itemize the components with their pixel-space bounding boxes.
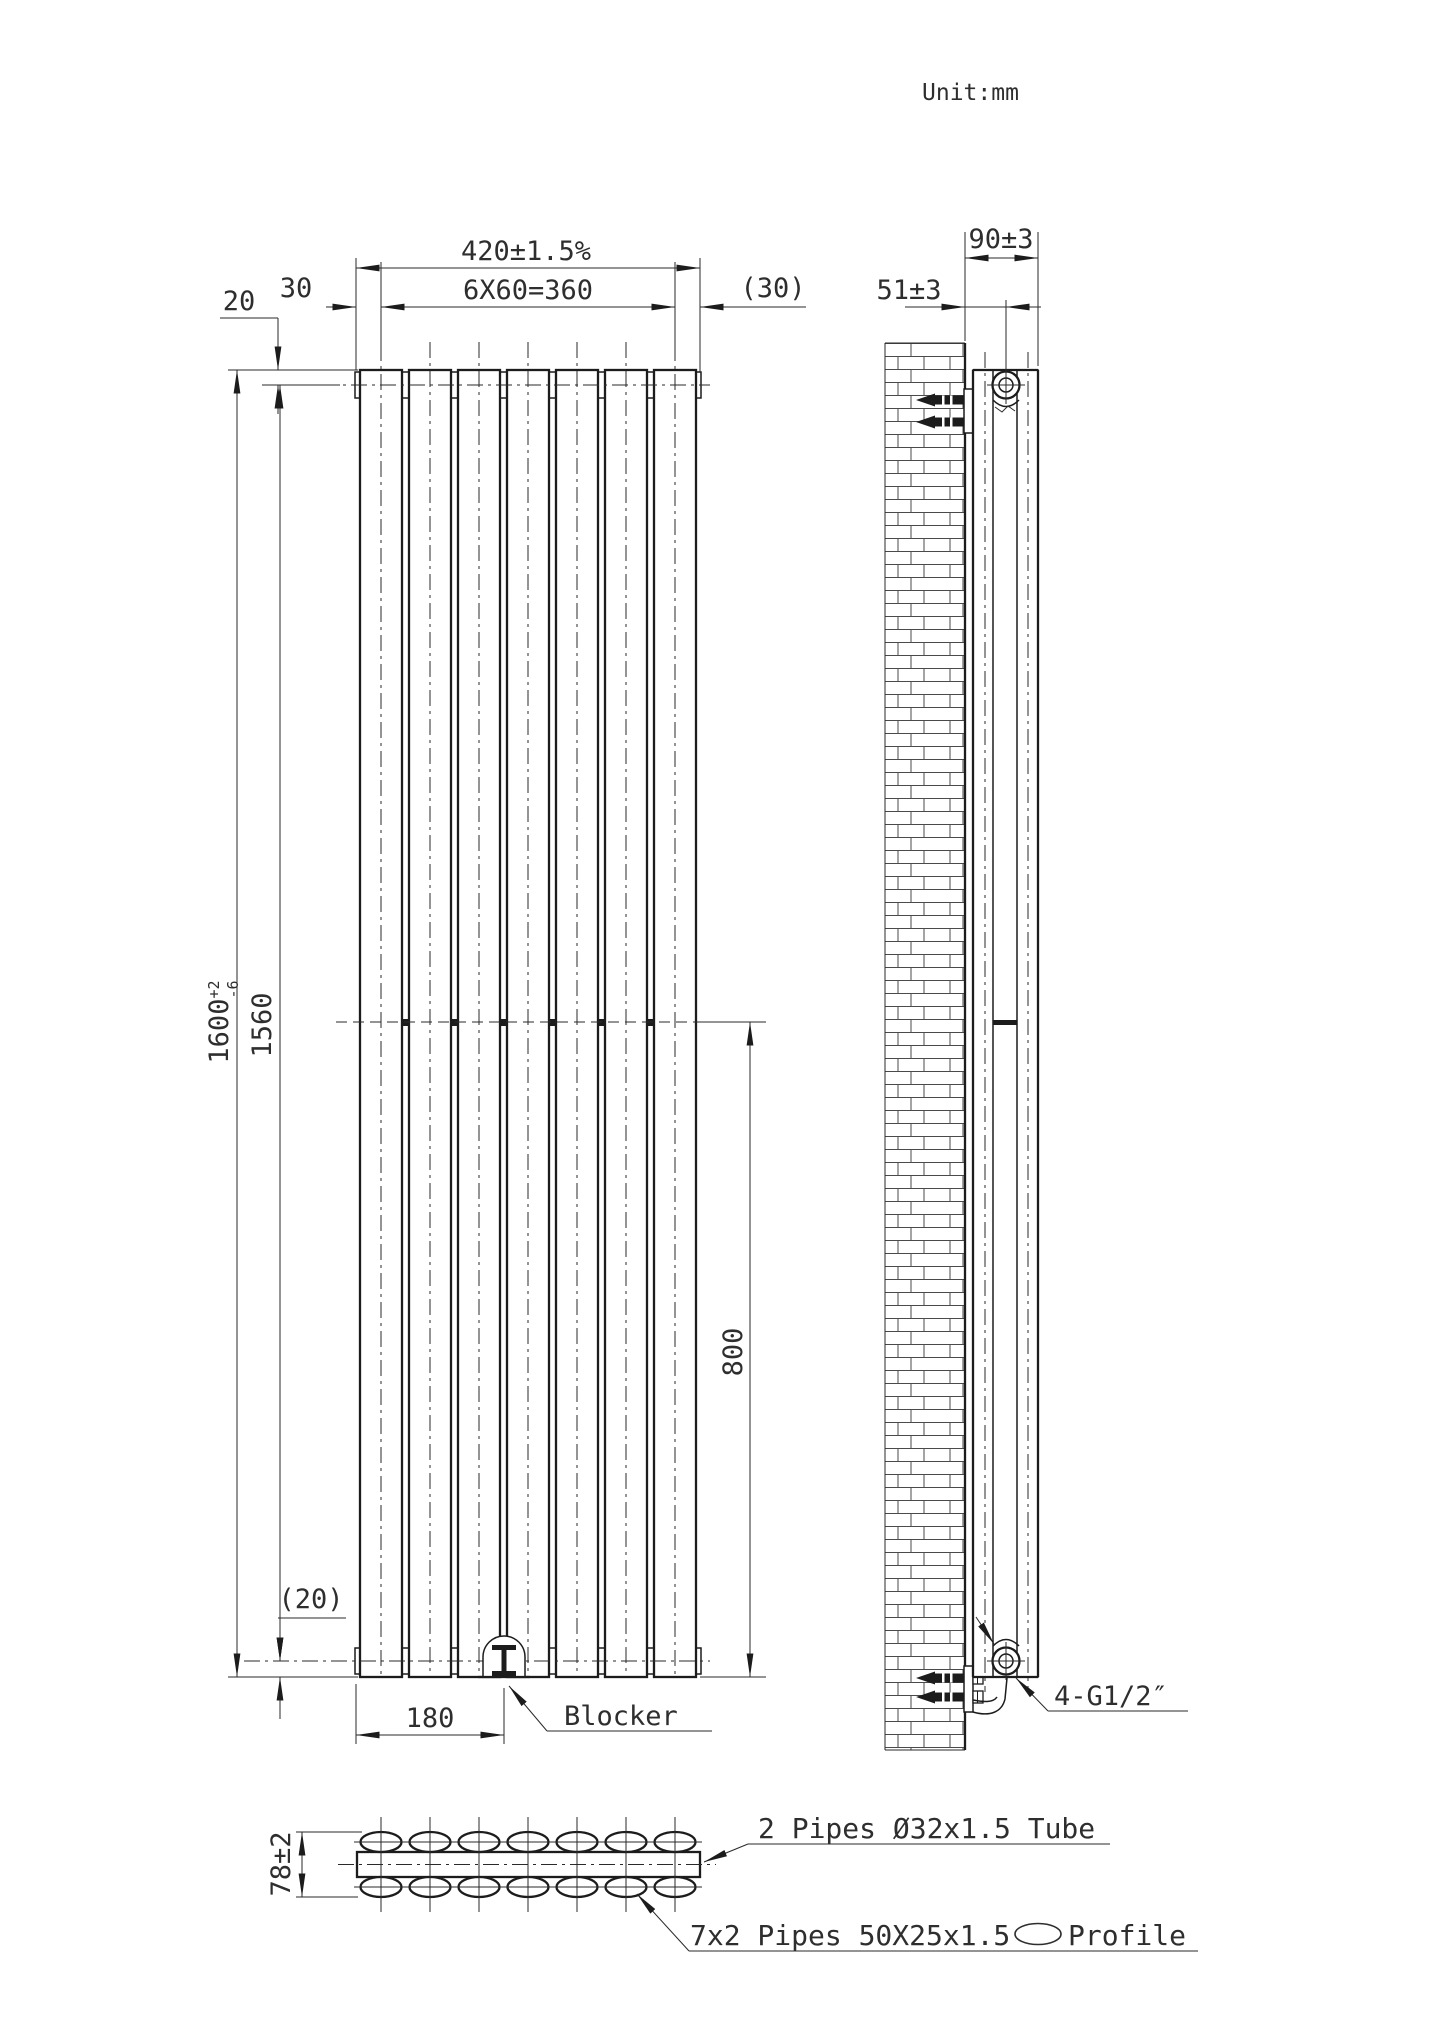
- dim-label-width-total: 420±1.5%: [461, 236, 591, 267]
- wall-bricks: [885, 343, 965, 1750]
- oval-profile-icon: [1015, 1924, 1061, 1945]
- dim-label-depth: 90±3: [968, 224, 1033, 255]
- unit-label: Unit:mm: [922, 80, 1019, 106]
- oval-pipes-label-suffix: Profile: [1068, 1919, 1186, 1952]
- dim-label-wall-to-axis: 51±3: [876, 275, 941, 306]
- section-labels: 78±2 2 Pipes Ø32x1.5 Tube 7x2 Pipes 50X2…: [266, 1812, 1198, 1952]
- drawing-page: Unit:mm: [0, 0, 1445, 2044]
- blocker-label: Blocker: [564, 1701, 678, 1732]
- dim-height-value: 1600: [204, 999, 235, 1064]
- dim-label-top-pipe-offset: 20: [223, 286, 256, 317]
- dim-label-bottom-pipe-offset: (20): [278, 1584, 343, 1615]
- oval-pipes-label-prefix: 7x2 Pipes 50X25x1.5: [690, 1919, 1010, 1952]
- side-view: [885, 343, 1038, 1750]
- wall: [885, 343, 965, 1750]
- header-tube-leader: [704, 1844, 748, 1862]
- rear-tube-column: [973, 370, 993, 1677]
- mid-connector-side: [993, 1020, 1017, 1025]
- blocker-leader: [509, 1686, 547, 1731]
- bracket-plate: [964, 389, 973, 433]
- section-view: [338, 1817, 716, 1912]
- front-view: [244, 342, 764, 1677]
- dim-height-tol-lower: -6: [224, 980, 242, 998]
- bracket-plate: [964, 1666, 973, 1712]
- dim-height-tol-upper: +2: [205, 980, 223, 998]
- dim-label-mid-to-bottom: 800: [718, 1328, 749, 1377]
- radiator-technical-drawing: Unit:mm: [0, 0, 1445, 2044]
- oval-pipes-leader: [637, 1894, 689, 1951]
- radiator-side-profile: [973, 352, 1038, 1692]
- dim-label-height: 1600+2-6: [204, 980, 242, 1063]
- connections-leader: [1016, 1678, 1048, 1711]
- dim-label-blocker-offset: 180: [406, 1703, 455, 1734]
- dim-label-thickness: 78±2: [266, 1831, 297, 1896]
- front-dimensions: 420±1.5% 6X60=360 30 (30) 20 1600+2-6 15…: [204, 236, 806, 1744]
- dim-label-right-margin: (30): [740, 273, 805, 304]
- connections-label: 4-G1/2″: [1054, 1681, 1168, 1712]
- dim-label-left-margin: 30: [280, 273, 313, 304]
- dim-label-panel-pitch: 6X60=360: [463, 275, 593, 306]
- header-tube-label: 2 Pipes Ø32x1.5 Tube: [758, 1812, 1095, 1845]
- dim-label-pipe-to-pipe: 1560: [247, 992, 278, 1057]
